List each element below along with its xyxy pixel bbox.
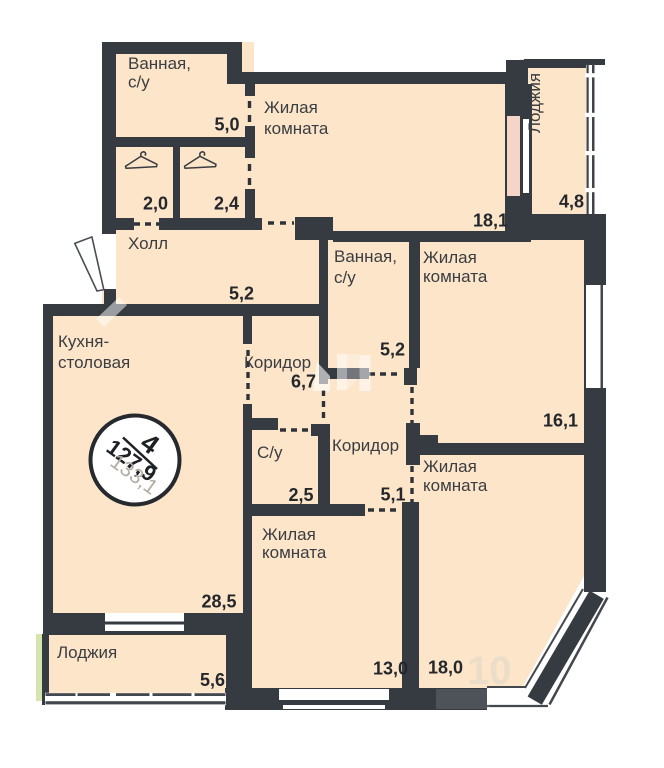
svg-text:столовая: столовая bbox=[58, 353, 130, 372]
svg-text:5,0: 5,0 bbox=[214, 115, 239, 135]
svg-text:5,6: 5,6 bbox=[200, 670, 225, 690]
svg-text:28,5: 28,5 bbox=[201, 592, 236, 612]
svg-text:2,0: 2,0 bbox=[143, 194, 168, 214]
svg-text:6,7: 6,7 bbox=[291, 372, 316, 392]
svg-text:Коридор: Коридор bbox=[332, 436, 399, 455]
svg-text:Ванная,: Ванная, bbox=[334, 247, 397, 266]
svg-text:5,2: 5,2 bbox=[229, 284, 254, 304]
svg-text:Холл: Холл bbox=[128, 234, 168, 253]
svg-text:5,2: 5,2 bbox=[380, 340, 405, 360]
svg-text:С/у: С/у bbox=[257, 443, 283, 462]
svg-text:с/у: с/у bbox=[128, 73, 150, 92]
svg-text:с/у: с/у bbox=[334, 268, 356, 287]
svg-text:4,8: 4,8 bbox=[559, 192, 584, 212]
svg-text:18,0: 18,0 bbox=[428, 658, 463, 678]
svg-text:18,1: 18,1 bbox=[473, 211, 508, 231]
svg-text:комната: комната bbox=[264, 119, 329, 138]
svg-text:13,0: 13,0 bbox=[373, 659, 408, 679]
svg-text:2,5: 2,5 bbox=[288, 485, 313, 505]
svg-text:2,4: 2,4 bbox=[214, 194, 239, 214]
svg-text:5,1: 5,1 bbox=[380, 485, 405, 505]
svg-text:Лоджия: Лоджия bbox=[525, 73, 544, 133]
svg-text:Кухня-: Кухня- bbox=[58, 332, 109, 351]
svg-text:комната: комната bbox=[423, 267, 488, 286]
svg-text:Лоджия: Лоджия bbox=[57, 643, 117, 662]
svg-text:Жилая: Жилая bbox=[262, 525, 316, 544]
svg-text:комната: комната bbox=[262, 543, 327, 562]
svg-text:Жилая: Жилая bbox=[264, 98, 318, 117]
svg-text:Ванная,: Ванная, bbox=[128, 54, 191, 73]
svg-text:комната: комната bbox=[423, 476, 488, 495]
svg-text:Коридор: Коридор bbox=[244, 353, 311, 372]
svg-text:Жилая: Жилая bbox=[423, 248, 477, 267]
svg-text:10: 10 bbox=[467, 649, 512, 693]
svg-text:16,1: 16,1 bbox=[543, 411, 578, 431]
svg-text:Жилая: Жилая bbox=[423, 457, 477, 476]
